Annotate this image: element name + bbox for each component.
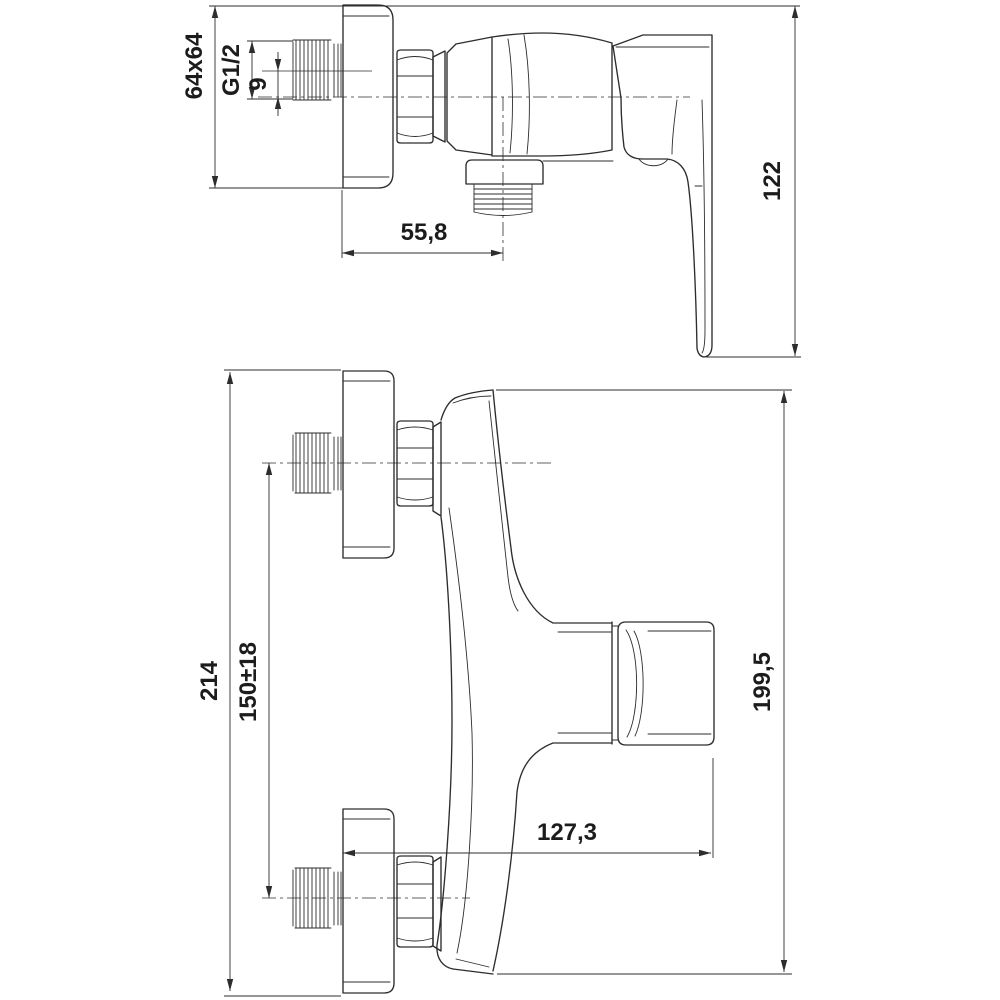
- dim-side-height-label: 122: [759, 161, 786, 201]
- outlet-knob: [618, 622, 714, 745]
- dim-connection-spacing-label: 150±18: [235, 642, 262, 722]
- top-hex-nut: [397, 421, 433, 506]
- dim-front-height: 199,5: [496, 390, 792, 974]
- bottom-wall-flange: [343, 809, 394, 993]
- bottom-adapter-cone: [433, 857, 441, 951]
- outlet-housing: [466, 160, 543, 184]
- inlet-thread: [293, 40, 341, 100]
- wall-flange: [343, 5, 393, 188]
- bottom-hex-nut: [397, 856, 433, 947]
- cartridge-cap: [447, 37, 492, 155]
- dim-depth-label: 127,3: [537, 819, 597, 846]
- dim-plate-span: 214: [196, 370, 341, 996]
- dim-outlet-offset: 55,8: [342, 190, 503, 258]
- dim-axis-offset-label: 9: [245, 77, 272, 90]
- top-wall-flange: [343, 371, 394, 558]
- dim-flange-square-label: 64x64: [181, 32, 208, 99]
- dim-front-height-label: 199,5: [749, 652, 776, 712]
- dim-plate-span-label: 214: [196, 660, 223, 701]
- dim-inlet-thread-label: G1/2: [218, 44, 245, 96]
- top-adapter-cone: [433, 422, 441, 516]
- hex-nut: [397, 50, 433, 143]
- dim-outlet-offset-label: 55,8: [401, 219, 448, 246]
- front-view: 214 150±18 199,5 127,3: [196, 370, 792, 996]
- dim-depth: 127,3: [343, 758, 713, 858]
- dim-side-height: 122: [706, 6, 801, 357]
- adapter-cone: [433, 51, 445, 142]
- side-view: 64x64 G1/2 9 55,8 122: [181, 5, 801, 357]
- technical-drawing-page: 64x64 G1/2 9 55,8 122: [0, 0, 1000, 1000]
- dim-connection-spacing: 150±18: [235, 463, 272, 898]
- dim-axis-offset: 9: [245, 52, 281, 116]
- shower-mixer-dimension-drawing: 64x64 G1/2 9 55,8 122: [0, 0, 1000, 1000]
- front-body: [437, 390, 618, 974]
- handle-lever: [613, 35, 712, 357]
